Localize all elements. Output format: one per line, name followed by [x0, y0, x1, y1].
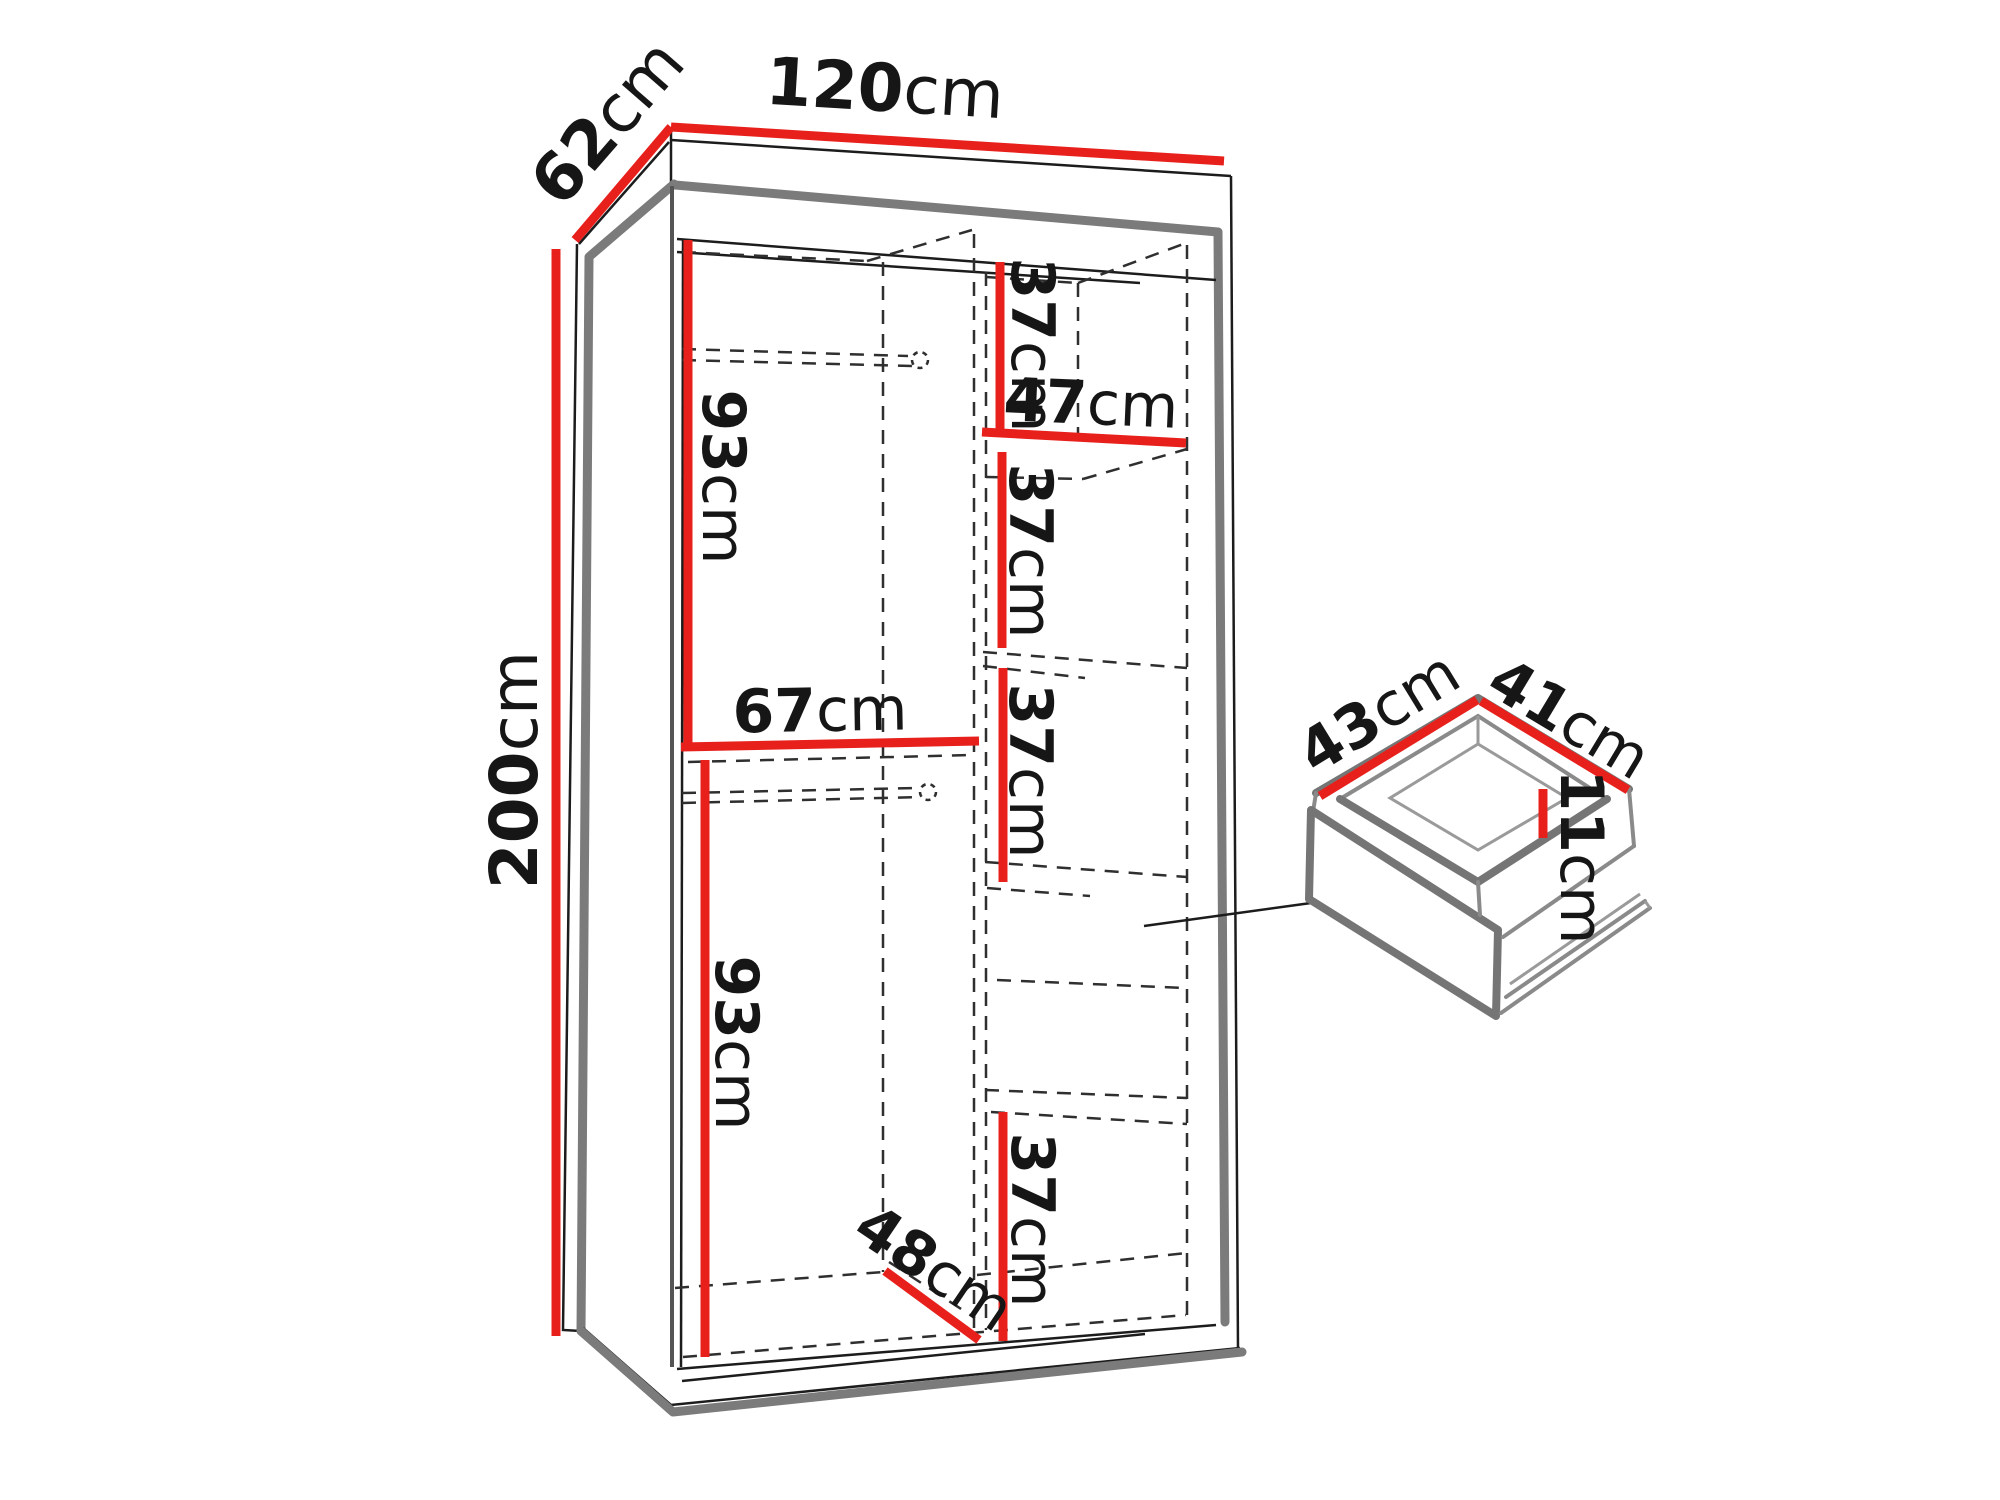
- dim-label-upper-left-section: 93cm: [688, 390, 758, 565]
- wardrobe-dimension-diagram: 120cm 62cm 200cm 93cm 67cm 93cm 37cm 47c…: [0, 0, 2000, 1500]
- dim-label-right-shelf-width: 47cm: [1002, 365, 1180, 443]
- dim-line-width: [671, 127, 1224, 161]
- dim-label-height: 200cm: [476, 651, 553, 889]
- diagram-page: 120cm 62cm 200cm 93cm 67cm 93cm 37cm 47c…: [0, 0, 2000, 1500]
- dim-label-right-section-2: 37cm: [995, 464, 1065, 639]
- dim-label-right-section-3: 37cm: [995, 684, 1065, 859]
- drawer-leader-line: [1144, 903, 1311, 926]
- dim-label-left-shelf-width: 67cm: [732, 674, 908, 747]
- dim-label-width: 120cm: [764, 42, 1007, 133]
- dim-label-lower-left-section: 93cm: [701, 956, 771, 1131]
- dim-label-drawer-height: 11cm: [1546, 770, 1616, 945]
